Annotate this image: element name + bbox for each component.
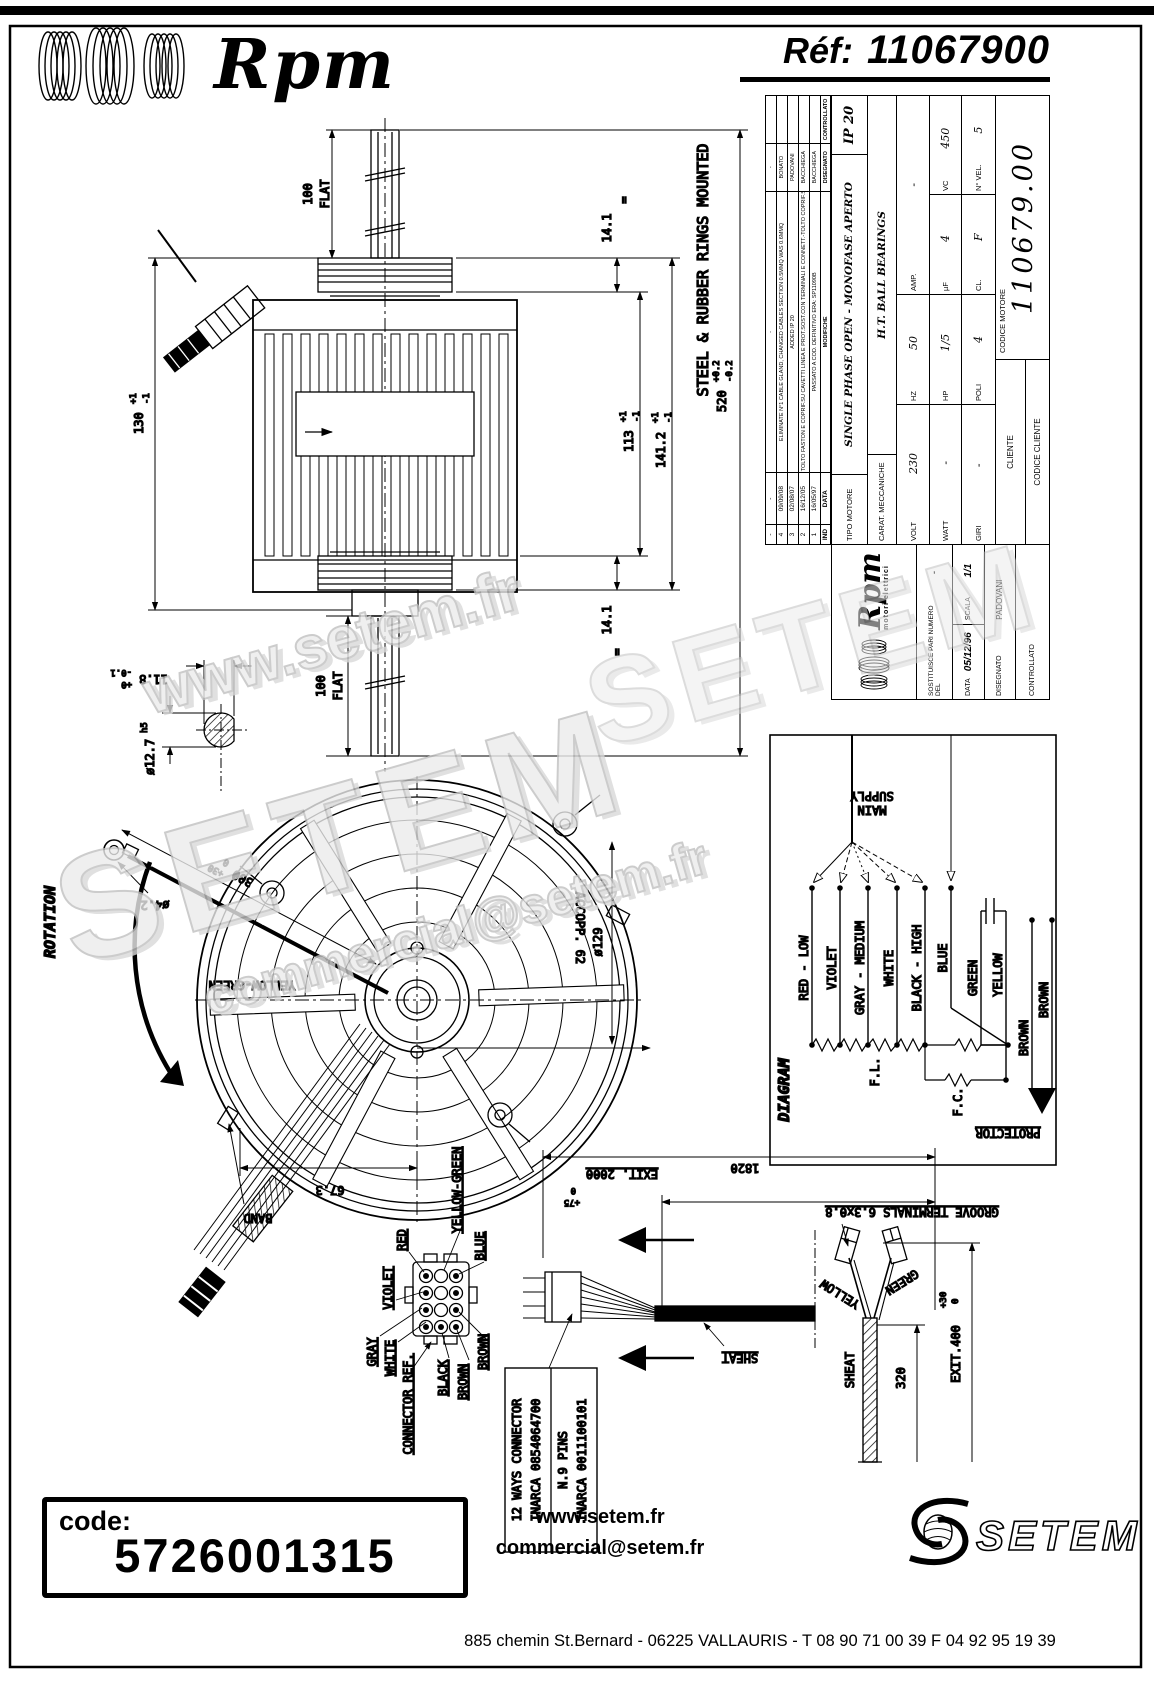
setem-logo-text: SETEM [976,1512,1140,1559]
website: www.setem.fr [455,1502,745,1533]
ground-lead-assembly [835,1227,907,1462]
protector-label: PROTECTOR [975,1126,1041,1140]
dim-520: 520 [715,390,729,412]
dim-300: 300 [230,867,256,890]
wire-black-label: BLACK - HIGH [910,925,924,1012]
wire-brown1-label: BROWN [1017,1020,1031,1056]
email: commercial@setem.fr [455,1533,745,1564]
dim-d129: ø129 [591,928,605,957]
wire-red-label: RED - LOW [797,935,811,1001]
title-block-brand: Rpm [859,552,883,630]
wire-brown2-label: BROWN [1037,982,1051,1018]
reference-block: Réf:11067900 [740,28,1050,82]
pin-yellow-green-label: YELLOW-GREEN [450,1147,464,1234]
wire-white-label: WHITE [882,950,896,986]
motor-side-view: 100 FLAT 130 +1-1 14.1 = 113 +1-1 141.2 … [129,118,748,772]
wire-blue-label: BLUE [936,944,950,973]
codice-motore-value: 110679.00 [1008,96,1039,359]
wiring-diagram: DIAGRAM MAIN SUPPLY [770,735,1056,1165]
pin-brown2-label: BROWN [476,1334,490,1370]
pin-white-label: WHITE [383,1340,397,1376]
pin-gray-label: GRAY [365,1337,379,1367]
codice-motore-cell: CODICE MOTORE 110679.00 [996,96,1049,359]
rpm-logo-text: Rpm [214,31,396,99]
cliente-cell: CLIENTE [996,360,1026,544]
cable-gland [161,286,265,376]
dim-14-1-bot: 14.1 [600,606,614,635]
svg-text:-0.1: -0.1 [110,667,132,677]
svg-text:+1: +1 [651,412,661,423]
svg-text:+1: +1 [619,411,629,422]
flat-top: FLAT [318,180,332,209]
svg-text:+1: +1 [129,393,139,404]
wire-green-label: GREEN [966,960,980,996]
svg-text:-1: -1 [142,393,152,404]
title-block-specs: TIPO MOTORE SINGLE PHASE OPEN - MONOFASE… [832,96,1049,544]
motor-front-view: 300 +300 ø4.2 YELLOW-GREEN ROTATION ACCO… [41,776,650,1317]
steel-rubber-note: STEEL & RUBBER RINGS MOUNTED [694,144,712,397]
dim-67-3: 67.3 [316,1183,345,1197]
fc-label: F.C. [951,1088,965,1117]
dim-d12-7: ø12.7 [143,739,157,775]
svg-text:+30: +30 [939,1292,949,1308]
dim-130: 130 [132,412,146,434]
contact-block: www.setem.fr commercial@setem.fr [455,1502,745,1564]
code-value: 5726001315 [47,1528,463,1583]
exit-2000-label: EXIT. 2000 [586,1167,658,1181]
sheat-label-sleeve: SHEAT [843,1352,857,1388]
sheat-label-cable: SHEAT [722,1351,758,1365]
svg-text:0: 0 [222,856,231,867]
groove-terminals-label: GROOVE TERMINALS 6.3x0.8 [825,1205,998,1219]
code-box: code: 5726001315 [42,1497,468,1598]
dim-14-1-top: 14.1 [600,214,614,243]
rpm-coil-icon-small [856,636,892,692]
pin-red-label: RED [395,1229,409,1251]
equals-top: = [617,196,631,203]
equals-bot: = [610,648,624,655]
main-supply-line1: MAIN [858,803,887,817]
svg-text:-0.2: -0.2 [725,360,735,382]
pin-blue-label: BLUE [473,1232,487,1261]
revision-table: ---- 409/09/08ELIMINATE N°1 CABLE GLAND,… [765,95,831,545]
exit-400-label: EXIT.400 [949,1325,963,1383]
pin-violet-label: VIOLET [381,1266,395,1309]
top-rule [0,6,1154,15]
svg-text:-1: -1 [664,412,674,423]
cable-detail: SHEAT EXIT. 2000 +75 0 1820 [543,1148,999,1462]
dim-100-bot: 100 [314,675,328,697]
setem-logo: SETEM [880,1492,1140,1582]
accopp-label: ACCOPP. 62 [573,892,587,964]
main-supply-line2: SUPPLY [850,789,894,803]
dim-113: 113 [622,430,636,452]
svg-text:+0: +0 [121,679,132,689]
connector-box-line3: N.9 PINS [556,1431,570,1489]
pin-black-label: BLACK [436,1359,450,1396]
diagram-title: DIAGRAM [775,1057,793,1122]
shaft-section-detail: 11.8 +0-0.1 ø12.7 h5 [110,660,252,792]
rotation-label: ROTATION [41,885,59,958]
pin-brown1-label: BROWN [456,1364,470,1400]
wire-gray-label: GRAY - MEDIUM [853,921,867,1015]
svg-text:0: 0 [571,1185,576,1195]
drawing-sheet: 100 FLAT 130 +1-1 14.1 = 113 +1-1 141.2 … [0,0,1154,1683]
flat-bot: FLAT [331,672,345,701]
dim-d4-2: ø4.2 [141,898,170,912]
dim-320: 320 [894,1367,908,1389]
dim-100-top: 100 [301,183,315,205]
wire-violet-label: VIOLET [825,946,839,989]
ground-wire-label: YELLOW-GREEN [209,978,296,992]
rpm-logo: Rpm [30,20,396,110]
ref-value: 11067900 [867,28,1050,72]
svg-text:+0.2: +0.2 [712,360,722,382]
rpm-coil-icon [30,20,200,110]
svg-text:+75: +75 [564,1197,580,1207]
ref-label: Réf: [783,30,853,71]
setem-swirl-icon [910,1501,968,1562]
fit-h5: h5 [140,722,150,733]
svg-text:0: 0 [951,1299,961,1304]
title-block-company: Rpm motori elettrici SOSTITUISCE PARI NU… [832,544,1049,699]
title-block: ---- 409/09/08ELIMINATE N°1 CABLE GLAND,… [765,95,1050,700]
fl-label: F.L. [868,1058,882,1087]
svg-text:-1: -1 [632,411,642,422]
dim-1820: 1820 [731,1161,760,1175]
address-line: 885 chemin St.Bernard - 06225 VALLAURIS … [440,1632,1080,1651]
wire-yellow-label: YELLOW [991,953,1005,997]
dim-141-2: 141.2 [654,432,668,468]
dim-11-8: 11.8 [139,672,168,686]
connector-detail: RED YELLOW-GREEN BLUE VIOLET GRAY WHITE … [365,1147,655,1552]
codice-cliente-cell: CODICE CLIENTE [1026,360,1049,544]
connector-ref-label: CONNECTOR REF. [401,1353,415,1454]
